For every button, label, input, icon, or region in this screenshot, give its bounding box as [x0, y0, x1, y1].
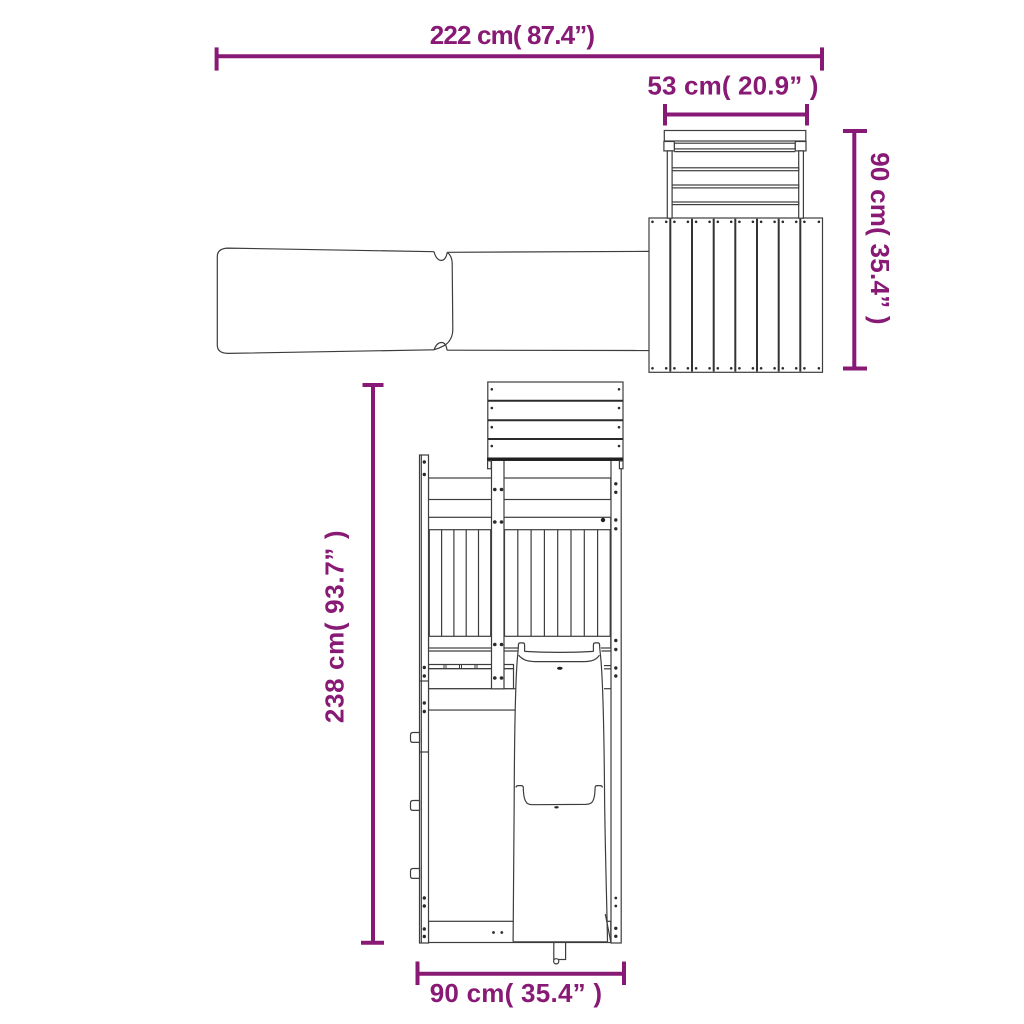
svg-text:90 cm( 35.4” ): 90 cm( 35.4” )	[430, 978, 603, 1008]
svg-text:222 cm( 87.4”): 222 cm( 87.4”)	[430, 20, 595, 50]
svg-text:238 cm( 93.7” ): 238 cm( 93.7” )	[320, 530, 350, 723]
svg-text:53 cm( 20.9” ): 53 cm( 20.9” )	[647, 71, 818, 101]
svg-text:90 cm( 35.4” ): 90 cm( 35.4” )	[865, 152, 895, 325]
